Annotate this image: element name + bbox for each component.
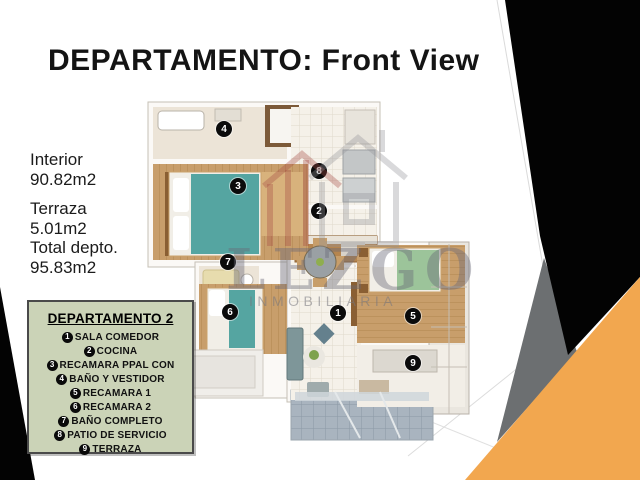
legend-number-badge: 9 (79, 444, 90, 455)
watermark-brand: LEZGO (226, 240, 481, 300)
pillow (173, 178, 189, 212)
legend-item: 3 RECAMARA PPAL CON (29, 358, 192, 372)
plan-marker-9: 9 (405, 355, 421, 371)
legend-item: 2 COCINA (29, 344, 192, 358)
plan-marker-5: 5 (405, 308, 421, 324)
bathtub (158, 111, 204, 130)
legend-title: DEPARTAMENTO 2 (29, 311, 192, 326)
plan-marker-4: 4 (216, 121, 232, 137)
legend-number-badge: 5 (70, 388, 81, 399)
planter (359, 380, 389, 394)
legend-number-badge: 7 (58, 416, 69, 427)
legend-item: 9 TERRAZA (29, 442, 192, 456)
legend-item: 7 BAÑO COMPLETO (29, 414, 192, 428)
house-icon (250, 126, 425, 251)
legend-item: 5 RECAMARA 1 (29, 386, 192, 400)
legend-number-badge: 4 (56, 374, 67, 385)
legend-number-badge: 1 (62, 332, 73, 343)
plant (309, 350, 319, 360)
legend-number-badge: 8 (54, 430, 65, 441)
legend-item: 1 SALA COMEDOR (29, 330, 192, 344)
legend-number-badge: 3 (47, 360, 58, 371)
legend-item: 8 PATIO DE SERVICIO (29, 428, 192, 442)
legend-number-badge: 2 (84, 346, 95, 357)
plan-marker-3: 3 (230, 178, 246, 194)
sink (215, 109, 241, 121)
legend-item: 6 RECAMARA 2 (29, 400, 192, 414)
sofa (287, 328, 303, 380)
watermark-subtitle: INMOBILIARIA (249, 293, 397, 309)
plan-marker-6: 6 (222, 304, 238, 320)
legend-item: 4 BAÑO Y VESTIDOR (29, 372, 192, 386)
legend-box: DEPARTAMENTO 2 1 SALA COMEDOR 2 COCINA 3… (27, 300, 194, 454)
legend-number-badge: 6 (70, 402, 81, 413)
pillow (173, 216, 189, 250)
